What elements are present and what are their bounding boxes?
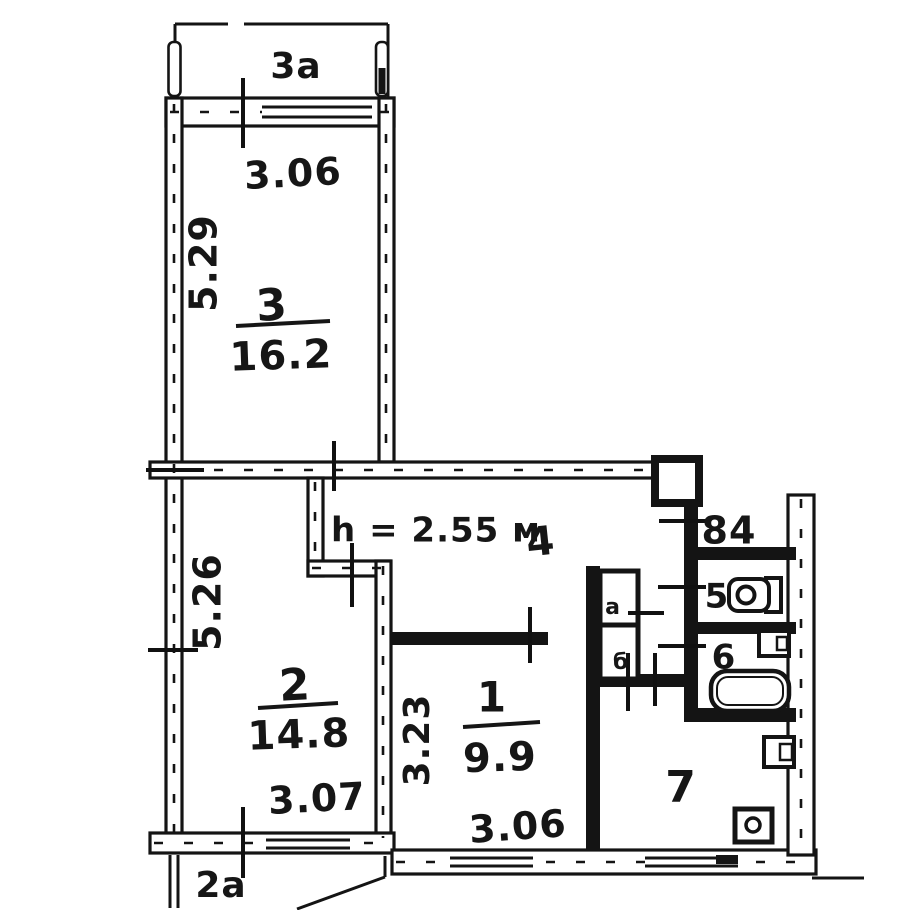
- dim-room1-depth: 3.23: [397, 694, 438, 787]
- wall-room1-top-left: [391, 632, 548, 645]
- room2-underline: [258, 703, 338, 708]
- wall-bath-left: [684, 495, 698, 722]
- room6-number: 6: [712, 638, 737, 678]
- balcony-bottom-angled-edge: [297, 877, 385, 909]
- room5-number: 5: [705, 577, 730, 617]
- window-room2: [266, 835, 350, 851]
- dim-room3-depth: 5.29: [182, 214, 226, 312]
- closet-b-label: б: [613, 650, 629, 675]
- room1-underline: [463, 722, 540, 727]
- balcony-rail-left: [169, 42, 181, 96]
- sink-detail: [777, 637, 787, 650]
- hall-fixtures: [735, 737, 794, 842]
- room1-number: 1: [477, 673, 507, 722]
- balcony-bottom-label: 2а: [195, 865, 246, 906]
- vent-circle-icon: [746, 818, 760, 832]
- wall-cabinet-detail: [780, 744, 792, 760]
- room2-area: 14.8: [247, 710, 351, 760]
- closet-a-label: а: [605, 595, 621, 620]
- ceiling-height-note: h = 2.55 м: [331, 511, 541, 551]
- dim-room2-width: 3.07: [267, 774, 367, 823]
- corner-column: [655, 459, 699, 503]
- balcony-top-label: 3а: [270, 46, 321, 87]
- dim-room2-depth: 5.26: [186, 553, 230, 651]
- room1-area: 9.9: [462, 734, 537, 783]
- room4-number: 4: [524, 518, 557, 567]
- apartment-number: 84: [702, 509, 757, 553]
- toilet-seat-icon: [738, 587, 755, 604]
- window-room3: [262, 100, 372, 124]
- dim-room3-width: 3.06: [243, 149, 343, 198]
- window-room7: [645, 852, 738, 872]
- room7-number: 7: [665, 762, 697, 813]
- floor-plan-scan: 3а 3.06 5.29 3 16.2 h = 2.55 м 4 84 5 6 …: [0, 0, 906, 910]
- window-room1: [450, 852, 533, 872]
- room3-area: 16.2: [229, 331, 333, 381]
- wc-fixtures: [729, 578, 781, 612]
- room3-underline: [236, 321, 330, 326]
- dim-room1-width: 3.06: [468, 801, 569, 852]
- floor-plan-drawing: 3а 3.06 5.29 3 16.2 h = 2.55 м 4 84 5 6 …: [0, 0, 906, 910]
- balcony-rail-right-fill: [379, 68, 386, 94]
